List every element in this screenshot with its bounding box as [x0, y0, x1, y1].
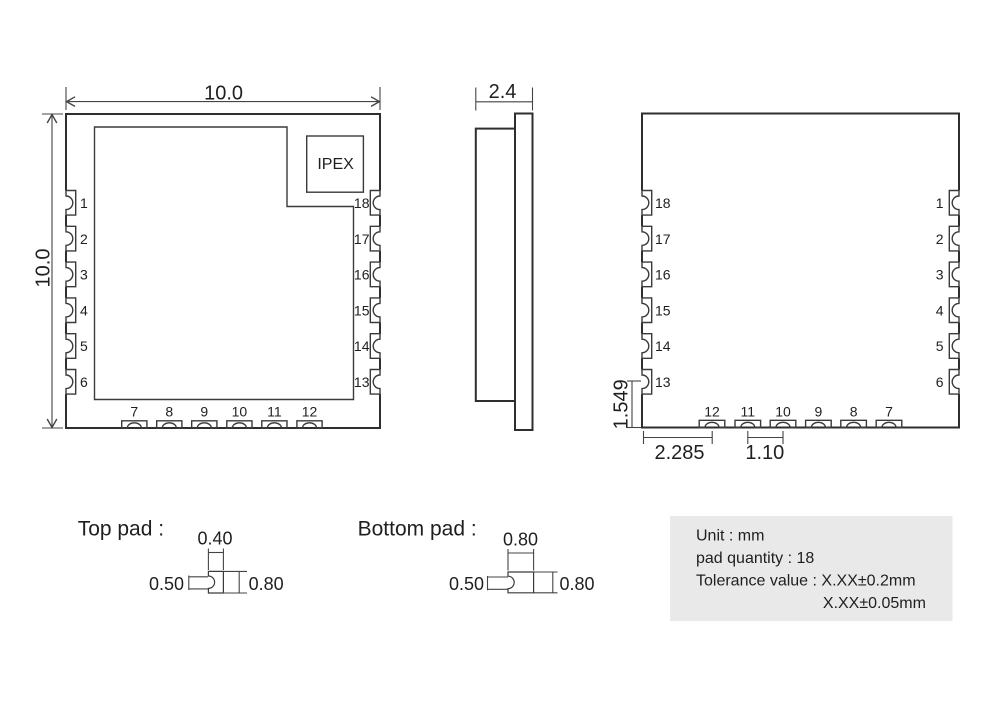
svg-text:1: 1 — [80, 195, 88, 211]
svg-text:6: 6 — [80, 374, 88, 390]
svg-text:Tolerance value : X.XX±0.2mm: Tolerance value : X.XX±0.2mm — [696, 572, 916, 589]
svg-text:7: 7 — [885, 404, 893, 420]
svg-text:14: 14 — [655, 338, 671, 354]
svg-text:0.50: 0.50 — [449, 574, 484, 594]
svg-text:13: 13 — [354, 374, 370, 390]
svg-text:11: 11 — [267, 404, 282, 420]
svg-text:5: 5 — [936, 338, 944, 354]
svg-text:9: 9 — [200, 404, 208, 420]
svg-text:pad quantity : 18: pad quantity : 18 — [696, 550, 814, 567]
svg-text:Unit : mm: Unit : mm — [696, 528, 764, 545]
svg-text:2.4: 2.4 — [489, 81, 517, 103]
svg-text:5: 5 — [80, 338, 88, 354]
svg-text:2: 2 — [80, 231, 88, 247]
svg-text:14: 14 — [354, 338, 370, 354]
svg-text:8: 8 — [850, 404, 858, 420]
svg-text:Top pad :: Top pad : — [78, 518, 164, 541]
svg-text:X.XX±0.05mm: X.XX±0.05mm — [823, 595, 926, 612]
svg-text:2.285: 2.285 — [654, 442, 704, 464]
svg-text:15: 15 — [655, 302, 671, 318]
svg-text:0.40: 0.40 — [197, 528, 232, 548]
svg-text:18: 18 — [655, 195, 671, 211]
svg-text:4: 4 — [80, 302, 88, 318]
svg-text:10: 10 — [232, 404, 248, 420]
svg-text:8: 8 — [165, 404, 173, 420]
svg-text:12: 12 — [302, 404, 318, 420]
svg-text:IPEX: IPEX — [317, 156, 354, 173]
svg-text:3: 3 — [936, 267, 944, 283]
svg-text:0.80: 0.80 — [503, 530, 538, 550]
svg-text:1.549: 1.549 — [611, 379, 633, 429]
svg-text:13: 13 — [655, 374, 671, 390]
svg-text:10: 10 — [775, 404, 791, 420]
svg-text:0.80: 0.80 — [249, 574, 284, 594]
svg-text:12: 12 — [704, 404, 720, 420]
svg-text:0.80: 0.80 — [560, 574, 595, 594]
svg-text:17: 17 — [354, 231, 370, 247]
svg-text:6: 6 — [936, 374, 944, 390]
svg-text:17: 17 — [655, 231, 671, 247]
svg-text:18: 18 — [354, 195, 370, 211]
svg-text:15: 15 — [354, 302, 370, 318]
svg-text:10.0: 10.0 — [33, 249, 55, 288]
svg-text:0.50: 0.50 — [149, 574, 184, 594]
svg-text:11: 11 — [741, 404, 756, 420]
svg-text:16: 16 — [354, 267, 370, 283]
svg-text:9: 9 — [815, 404, 823, 420]
svg-text:1: 1 — [936, 195, 944, 211]
svg-text:2: 2 — [936, 231, 944, 247]
svg-text:7: 7 — [130, 404, 138, 420]
svg-text:4: 4 — [936, 302, 944, 318]
svg-text:1.10: 1.10 — [745, 442, 784, 464]
svg-text:3: 3 — [80, 267, 88, 283]
svg-text:16: 16 — [655, 267, 671, 283]
svg-text:Bottom pad :: Bottom pad : — [358, 518, 477, 541]
svg-text:10.0: 10.0 — [204, 82, 243, 104]
